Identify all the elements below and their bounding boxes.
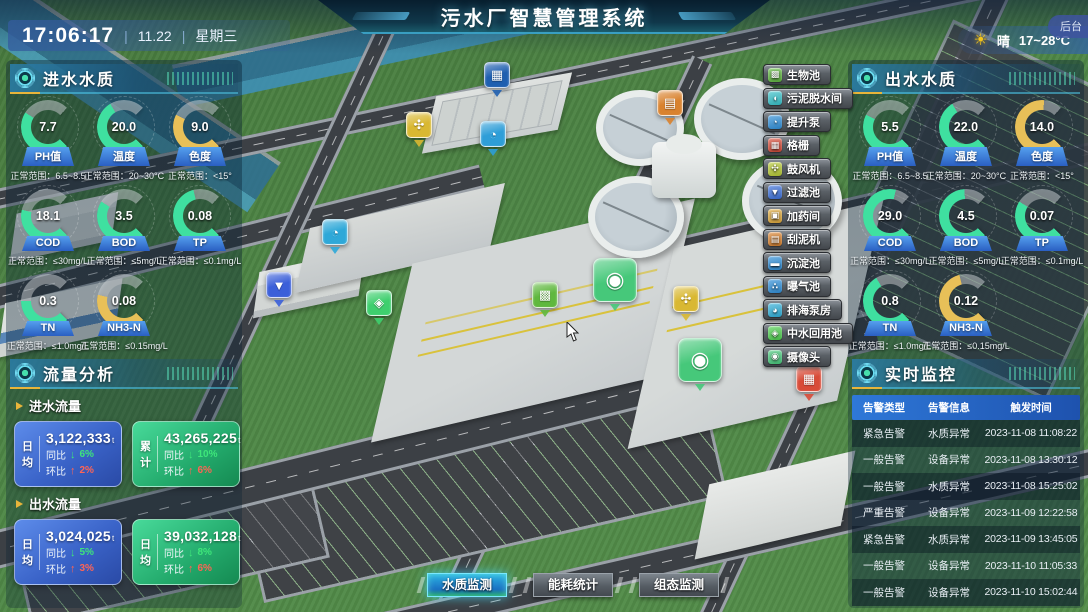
alarm-table-header: 告警类型告警信息触发时间 (852, 395, 1080, 420)
gauge-色度: 14.0色度正常范围：<15° (1004, 100, 1080, 182)
aeration-pool-icon: ∴ (768, 279, 782, 293)
marker-camera-1[interactable]: ◉ (593, 258, 637, 311)
equipment-button-label: 加药间 (787, 208, 820, 224)
trend-percent: 2% (80, 465, 94, 476)
gauge-TN: 0.8TN正常范围：≤1.0mg/L (852, 274, 928, 352)
gauge-温度: 20.0温度正常范围：20~30°C (86, 100, 162, 182)
trend-percent: 5% (80, 547, 94, 558)
arrow-up-icon: ↑ (188, 563, 194, 575)
equipment-button-摄像头[interactable]: ◉摄像头 (763, 346, 831, 367)
equipment-button-label: 沉淀池 (787, 255, 820, 271)
tab-能耗统计[interactable]: 能耗统计 (533, 573, 613, 597)
arrow-down-icon: ↓ (70, 547, 76, 559)
flow-card-日均: 日均3,122,333t同比↓6%环比↑2% (14, 421, 122, 487)
alarm-col-header: 告警信息 (916, 400, 982, 415)
alarm-time: 2023-11-08 11:08:22 (982, 427, 1080, 439)
equipment-button-格栅[interactable]: ▦格栅 (763, 135, 820, 156)
alarm-type: 一般告警 (852, 479, 916, 494)
arrow-up-icon: ↑ (70, 563, 76, 575)
marker-pointer (414, 140, 424, 147)
gauge-label: 色度 (174, 147, 226, 166)
gauge-normal-range: 正常范围：≤1.0mg/L (849, 339, 931, 352)
gauge-TP: 0.07TP正常范围：≤0.1mg/L (1004, 189, 1080, 267)
equipment-button-排海泵房[interactable]: ◕排海泵房 (763, 299, 842, 320)
marker-scraper[interactable]: ▤ (657, 90, 683, 125)
gauge-NH3-N: 0.08NH3-N正常范围：≤0.15mg/L (86, 274, 162, 352)
marker-grille-icon: ▦ (796, 366, 822, 392)
gauge-normal-range: 正常范围：6.5~8.5 (10, 169, 85, 182)
section-dots-decor (1009, 367, 1075, 380)
gauge-normal-range: 正常范围：20~30°C (84, 169, 164, 182)
gauge-normal-range: 正常范围：<15° (1010, 169, 1074, 182)
tab-水质监测[interactable]: 水质监测 (427, 573, 507, 597)
gauge-label: NH3-N (940, 321, 992, 336)
gauge-label: PH值 (864, 147, 916, 166)
sea-pump-house-icon: ◕ (768, 303, 782, 317)
gauge-label: TN (22, 321, 74, 336)
alarm-table: 告警类型告警信息触发时间 紧急告警水质异常2023-11-08 11:08:22… (852, 395, 1080, 606)
arrow-down-icon: ↓ (188, 449, 194, 461)
divider: | (182, 28, 186, 44)
trend-percent: 6% (198, 465, 212, 476)
equipment-button-label: 曝气池 (787, 278, 820, 294)
flow-card-trend-row: 同比↓5% (46, 545, 115, 560)
gauge-COD: 18.1COD正常范围：≤30mg/L (10, 189, 86, 267)
marker-filter-icon: ▼ (266, 272, 292, 298)
equipment-button-加药间[interactable]: ▣加药间 (763, 205, 831, 226)
marker-sedimentation[interactable]: ▦ (484, 62, 510, 97)
alarm-row: 紧急告警水质异常2023-11-08 11:08:22 (852, 420, 1080, 447)
flow-card-tag: 累计 (140, 436, 158, 472)
equipment-button-label: 格栅 (787, 137, 809, 153)
alarm-row: 一般告警设备异常2023-11-10 11:05:33 (852, 553, 1080, 580)
clock-weekday: 星期三 (195, 26, 237, 46)
section-dot-icon (857, 68, 877, 88)
marker-blower-1[interactable]: ✣ (406, 112, 432, 147)
section-dot-icon (15, 68, 35, 88)
flow-card-trend-row: 环比↑6% (164, 561, 241, 576)
alarm-type: 紧急告警 (852, 532, 916, 547)
trend-percent: 10% (198, 449, 218, 460)
trend-percent: 6% (80, 449, 94, 460)
gauge-normal-range: 正常范围：≤0.1mg/L (159, 254, 241, 267)
flow-card-trend-row: 同比↓6% (46, 447, 115, 462)
gauge-label: TP (1016, 236, 1068, 251)
flow-card-tag: 日均 (140, 534, 158, 570)
gauge-value: 0.08 (173, 189, 227, 243)
lift-pump-icon: ◔ (768, 115, 782, 129)
arrow-up-icon: ↑ (188, 465, 194, 477)
section-title: 流量分析 (43, 361, 115, 385)
alarm-type: 严重告警 (852, 505, 916, 520)
flow-card-value: 43,265,225t (164, 430, 241, 446)
gauge-TN: 0.3TN正常范围：≤1.0mg/L (10, 274, 86, 352)
gauge-value: 3.5 (97, 189, 151, 243)
flow-card-trend-row: 环比↑6% (164, 463, 241, 478)
alarm-time: 2023-11-09 12:22:58 (982, 507, 1080, 519)
marker-pump-2-icon: ◔ (322, 219, 348, 245)
flow-card-value: 3,122,333t (46, 430, 115, 446)
left-panel: 进水水质 7.7PH值正常范围：6.5~8.520.0温度正常范围：20~30°… (6, 60, 242, 608)
marker-camera-1-icon: ◉ (593, 258, 637, 302)
trend-percent: 8% (198, 547, 212, 558)
trend-percent: 6% (198, 563, 212, 574)
flow-card-tag: 日均 (22, 436, 40, 472)
equipment-button-label: 刮泥机 (787, 231, 820, 247)
flow-group-label: 出水流量 (16, 494, 238, 513)
alarm-row: 严重告警设备异常2023-11-09 12:22:58 (852, 500, 1080, 527)
alarm-col-header: 告警类型 (852, 400, 916, 415)
marker-camera-2-icon: ◉ (678, 338, 722, 382)
gauge-NH3-N: 0.12NH3-N正常范围：≤0.15mg/L (928, 274, 1004, 352)
gauge-label: COD (22, 236, 74, 251)
gauge-温度: 22.0温度正常范围：20~30°C (928, 100, 1004, 182)
flow-card-trend-row: 同比↓8% (164, 545, 241, 560)
equipment-button-label: 鼓风机 (787, 161, 820, 177)
equipment-button-label: 提升泵 (787, 114, 820, 130)
gauge-label: BOD (98, 236, 150, 251)
flow-card-unit: t (238, 436, 241, 445)
alarm-info: 设备异常 (916, 585, 982, 600)
alarm-info: 设备异常 (916, 558, 982, 573)
marker-pointer (488, 149, 498, 156)
section-header-flow: 流量分析 (10, 359, 238, 389)
tank-hub-structure (652, 142, 716, 198)
section-title: 出水水质 (885, 66, 957, 90)
water-reuse-icon: ◈ (768, 326, 782, 340)
flow-card-unit: t (112, 534, 115, 543)
equipment-button-提升泵[interactable]: ◔提升泵 (763, 111, 831, 132)
equipment-button-label: 摄像头 (787, 349, 820, 365)
gauge-normal-range: 正常范围：≤30mg/L (8, 254, 88, 267)
marker-pointer (540, 310, 550, 317)
alarm-row: 一般告警设备异常2023-11-08 13:30:12 (852, 447, 1080, 474)
marker-blower-1-icon: ✣ (406, 112, 432, 138)
section-title: 进水水质 (43, 66, 115, 90)
alarm-info: 设备异常 (916, 452, 982, 467)
flow-card-trend-row: 环比↑2% (46, 463, 115, 478)
camera-icon: ◉ (768, 350, 782, 364)
marker-pump-1-icon: ◔ (480, 121, 506, 147)
alarm-col-header: 触发时间 (982, 400, 1080, 415)
grille-icon: ▦ (768, 138, 782, 152)
equipment-button-label: 过滤池 (787, 184, 820, 200)
gauge-value: 0.07 (1015, 189, 1069, 243)
gauge-COD: 29.0COD正常范围：≤30mg/L (852, 189, 928, 267)
gauge-PH值: 5.5PH值正常范围：6.5~8.5 (852, 100, 928, 182)
marker-camera-2[interactable]: ◉ (678, 338, 722, 391)
trend-percent: 3% (80, 563, 94, 574)
section-dots-decor (167, 72, 233, 85)
section-header-outlet: 出水水质 (852, 64, 1080, 94)
gauge-normal-range: 正常范围：≤1.0mg/L (7, 339, 89, 352)
gauge-value: 29.0 (863, 189, 917, 243)
gauge-value: 20.0 (97, 100, 151, 154)
marker-grille[interactable]: ▦ (796, 366, 822, 401)
gauge-value: 18.1 (21, 189, 75, 243)
divider: | (124, 28, 128, 44)
gauge-value: 0.12 (939, 274, 993, 328)
title-banner: 污水厂智慧管理系统 (318, 0, 770, 34)
alarm-type: 紧急告警 (852, 426, 916, 441)
gauge-value: 0.3 (21, 274, 75, 328)
gauge-BOD: 3.5BOD正常范围：≤5mg/L (86, 189, 162, 267)
marker-pointer (695, 384, 705, 391)
dashboard-root: ▦✣◔▤◔▼◈▩◉✣◉▦ 污水厂智慧管理系统 17:06:17 | 11.22 … (0, 0, 1088, 612)
blower-icon: ✣ (768, 162, 782, 176)
marker-blower-2[interactable]: ✣ (673, 286, 699, 321)
arrow-down-icon: ↓ (70, 449, 76, 461)
marker-bio-icon: ▩ (532, 282, 558, 308)
alarm-info: 水质异常 (916, 532, 982, 547)
marker-bio[interactable]: ▩ (532, 282, 558, 317)
gauge-value: 14.0 (1015, 100, 1069, 154)
equipment-button-沉淀池[interactable]: ▬沉淀池 (763, 252, 831, 273)
section-dots-decor (1009, 72, 1075, 85)
section-title: 实时监控 (885, 361, 957, 385)
marker-pointer (492, 90, 502, 97)
gauge-label: TP (174, 236, 226, 251)
marker-sedimentation-icon: ▦ (484, 62, 510, 88)
flow-card-value: 3,024,025t (46, 528, 115, 544)
marker-pump-1[interactable]: ◔ (480, 121, 506, 156)
flow-card-日均: 日均39,032,128t同比↓8%环比↑6% (132, 519, 240, 585)
gauge-色度: 9.0色度正常范围：<15° (162, 100, 238, 182)
gauge-normal-range: 正常范围：6.5~8.5 (852, 169, 927, 182)
alarm-time: 2023-11-08 15:25:02 (982, 480, 1080, 492)
gauge-normal-range: 正常范围：≤5mg/L (928, 254, 1003, 267)
alarm-type: 一般告警 (852, 585, 916, 600)
gauge-label: 温度 (98, 147, 150, 166)
alarm-info: 设备异常 (916, 505, 982, 520)
right-panel: 出水水质 5.5PH值正常范围：6.5~8.522.0温度正常范围：20~30°… (848, 60, 1084, 608)
gauge-label: NH3-N (98, 321, 150, 336)
page-title: 污水厂智慧管理系统 (441, 2, 648, 31)
marker-filter[interactable]: ▼ (266, 272, 292, 307)
flow-card-trend-row: 同比↓10% (164, 447, 241, 462)
gauge-value: 0.8 (863, 274, 917, 328)
marker-reuse-icon: ◈ (366, 290, 392, 316)
alarm-type: 一般告警 (852, 452, 916, 467)
clock-date: 11.22 (138, 28, 172, 44)
alarm-time: 2023-11-09 13:45:05 (982, 533, 1080, 545)
gauge-label: 温度 (940, 147, 992, 166)
dosing-room-icon: ▣ (768, 209, 782, 223)
equipment-button-label: 排海泵房 (787, 302, 831, 318)
equipment-button-label: 生物池 (787, 67, 820, 83)
gauge-value: 4.5 (939, 189, 993, 243)
alarm-info: 水质异常 (916, 479, 982, 494)
clock-bar: 17:06:17 | 11.22 | 星期三 (8, 20, 290, 51)
equipment-button-刮泥机[interactable]: ▤刮泥机 (763, 229, 831, 250)
marker-pointer (330, 247, 340, 254)
equipment-button-过滤池[interactable]: ▼过滤池 (763, 182, 831, 203)
marker-pointer (804, 394, 814, 401)
marker-scraper-icon: ▤ (657, 90, 683, 116)
gauge-PH值: 7.7PH值正常范围：6.5~8.5 (10, 100, 86, 182)
flow-group-label: 进水流量 (16, 396, 238, 415)
tab-组态监测[interactable]: 组态监测 (639, 573, 719, 597)
sedimentation-icon: ▬ (768, 256, 782, 270)
banner-decor-left (352, 12, 411, 20)
mud-scraper-icon: ▤ (768, 232, 782, 246)
section-header-inlet: 进水水质 (10, 64, 238, 94)
marker-pointer (274, 300, 284, 307)
gauge-label: TN (864, 321, 916, 336)
flow-card-日均: 日均3,024,025t同比↓5%环比↑3% (14, 519, 122, 585)
gauge-label: COD (864, 236, 916, 251)
gauge-normal-range: 正常范围：≤0.15mg/L (80, 339, 167, 352)
flow-card-trend-row: 环比↑3% (46, 561, 115, 576)
weather-condition: 晴 (997, 31, 1010, 50)
marker-pump-2[interactable]: ◔ (322, 219, 348, 254)
gauge-value: 0.08 (97, 274, 151, 328)
gauge-normal-range: 正常范围：≤30mg/L (850, 254, 930, 267)
section-header-monitor: 实时监控 (852, 359, 1080, 389)
gauge-label: BOD (940, 236, 992, 251)
marker-pointer (374, 318, 384, 325)
flow-card-unit: t (112, 436, 115, 445)
equipment-button-label: 污泥脱水间 (787, 90, 842, 106)
alarm-row: 一般告警水质异常2023-11-08 15:25:02 (852, 473, 1080, 500)
equipment-button-中水回用池[interactable]: ◈中水回用池 (763, 323, 853, 344)
equipment-button-鼓风机[interactable]: ✣鼓风机 (763, 158, 831, 179)
marker-blower-2-icon: ✣ (673, 286, 699, 312)
filter-pool-icon: ▼ (768, 185, 782, 199)
mouse-cursor (566, 322, 581, 348)
gauge-TP: 0.08TP正常范围：≤0.1mg/L (162, 189, 238, 267)
section-dot-icon (857, 363, 877, 383)
sludge-dewater-icon: ◖ (768, 91, 782, 105)
gauge-normal-range: 正常范围：20~30°C (926, 169, 1006, 182)
equipment-button-曝气池[interactable]: ∴曝气池 (763, 276, 831, 297)
alarm-row: 紧急告警水质异常2023-11-09 13:45:05 (852, 526, 1080, 553)
flow-card-unit: t (238, 534, 241, 543)
gauge-BOD: 4.5BOD正常范围：≤5mg/L (928, 189, 1004, 267)
gauge-normal-range: 正常范围：<15° (168, 169, 232, 182)
section-dots-decor (167, 367, 233, 380)
gauge-value: 5.5 (863, 100, 917, 154)
arrow-down-icon: ↓ (188, 547, 194, 559)
flow-card-value: 39,032,128t (164, 528, 241, 544)
alarm-info: 水质异常 (916, 426, 982, 441)
gauge-normal-range: 正常范围：≤5mg/L (86, 254, 161, 267)
arrow-up-icon: ↑ (70, 465, 76, 477)
gauge-label: 色度 (1016, 147, 1068, 166)
marker-reuse[interactable]: ◈ (366, 290, 392, 325)
alarm-time: 2023-11-10 15:02:44 (982, 586, 1080, 598)
gauge-value: 9.0 (173, 100, 227, 154)
gauge-label: PH值 (22, 147, 74, 166)
gauge-normal-range: 正常范围：≤0.1mg/L (1001, 254, 1083, 267)
alarm-row: 一般告警设备异常2023-11-10 15:02:44 (852, 579, 1080, 606)
sun-icon: ☀ (974, 30, 988, 50)
marker-pointer (681, 314, 691, 321)
alarm-type: 一般告警 (852, 558, 916, 573)
clock-time: 17:06:17 (22, 24, 114, 48)
banner-decor-right (678, 12, 737, 20)
marker-pointer (665, 118, 675, 125)
alarm-time: 2023-11-10 11:05:33 (982, 560, 1080, 572)
gauge-normal-range: 正常范围：≤0.15mg/L (922, 339, 1009, 352)
backstage-button[interactable]: 后台 (1048, 15, 1088, 38)
gauge-value: 22.0 (939, 100, 993, 154)
equipment-button-label: 中水回用池 (787, 325, 842, 341)
equipment-button-污泥脱水间[interactable]: ◖污泥脱水间 (763, 88, 853, 109)
equipment-button-生物池[interactable]: ▩生物池 (763, 64, 831, 85)
gauge-value: 7.7 (21, 100, 75, 154)
alarm-time: 2023-11-08 13:30:12 (982, 454, 1080, 466)
flow-card-tag: 日均 (22, 534, 40, 570)
flow-card-累计: 累计43,265,225t同比↓10%环比↑6% (132, 421, 240, 487)
marker-pointer (610, 304, 620, 311)
section-dot-icon (15, 363, 35, 383)
bio-pool-icon: ▩ (768, 68, 782, 82)
